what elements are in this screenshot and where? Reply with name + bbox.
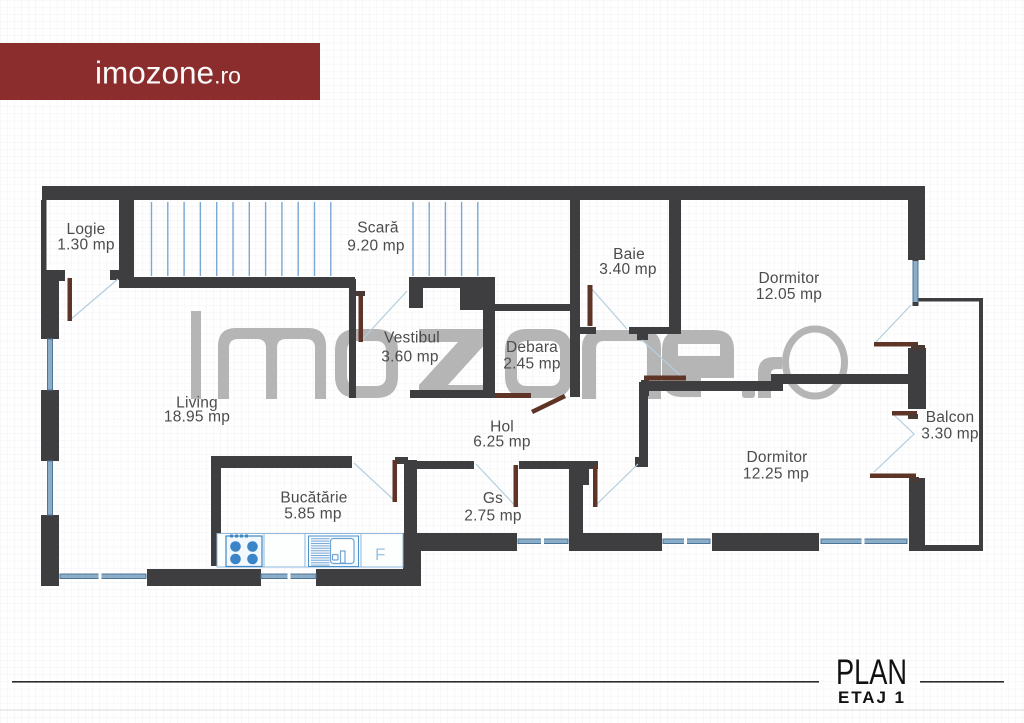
svg-text:3.30 mp: 3.30 mp: [921, 426, 978, 443]
svg-text:Dormitor: Dormitor: [746, 449, 807, 466]
svg-text:6.25 mp: 6.25 mp: [473, 434, 530, 451]
svg-text:Logie: Logie: [67, 221, 106, 238]
svg-text:5.85 mp: 5.85 mp: [284, 506, 341, 523]
svg-text:Bucătărie: Bucătărie: [280, 490, 347, 507]
svg-text:ETAJ 1: ETAJ 1: [838, 688, 904, 707]
svg-text:2.45 mp: 2.45 mp: [503, 356, 560, 373]
svg-text:3.60 mp: 3.60 mp: [381, 349, 438, 366]
svg-text:Debara: Debara: [506, 339, 558, 356]
svg-text:12.05 mp: 12.05 mp: [756, 286, 822, 303]
svg-text:F: F: [375, 545, 385, 564]
svg-text:18.95 mp: 18.95 mp: [164, 409, 230, 426]
svg-text:12.25 mp: 12.25 mp: [743, 466, 809, 483]
svg-text:Dormitor: Dormitor: [758, 270, 819, 287]
svg-text:PLAN: PLAN: [836, 653, 907, 692]
svg-text:Scară: Scară: [357, 220, 399, 237]
svg-text:2.75 mp: 2.75 mp: [464, 508, 521, 525]
svg-text:Gs: Gs: [483, 490, 503, 507]
svg-text:Vestibul: Vestibul: [384, 330, 440, 347]
svg-text:1.30 mp: 1.30 mp: [57, 237, 114, 254]
svg-text:9.20 mp: 9.20 mp: [347, 238, 404, 255]
svg-text:Balcon: Balcon: [926, 409, 975, 426]
svg-text:3.40 mp: 3.40 mp: [599, 261, 656, 278]
